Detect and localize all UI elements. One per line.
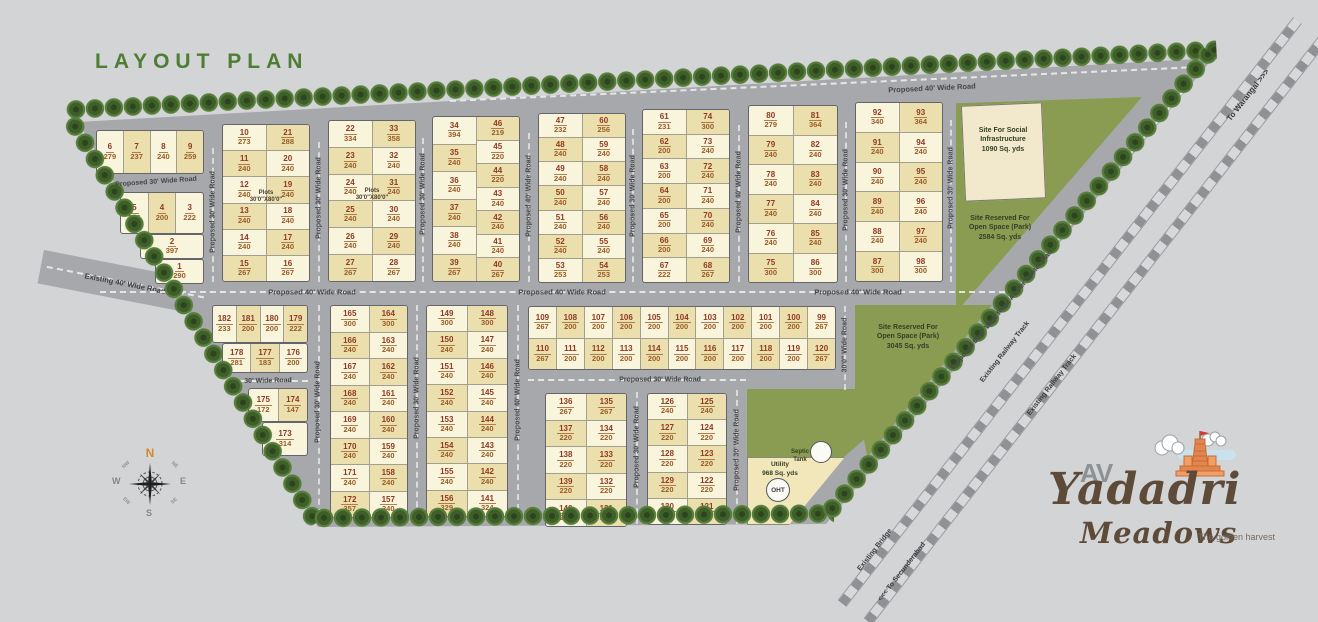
plot-cell: 105200 bbox=[640, 307, 668, 338]
plot-cell: 110267 bbox=[529, 339, 556, 370]
plot-cell: 56240 bbox=[583, 210, 626, 234]
plot-area: 233 bbox=[218, 325, 231, 333]
road-label-main-2: Proposed 40' Wide Road bbox=[518, 288, 606, 297]
plot-cell: 116200 bbox=[695, 339, 723, 370]
plot-area: 240 bbox=[440, 372, 453, 380]
plot-area: 240 bbox=[440, 399, 453, 407]
plot-area: 200 bbox=[564, 323, 577, 331]
road-label-v7: Proposed 30' Wide Road bbox=[843, 149, 850, 231]
plot-area: 267 bbox=[815, 355, 828, 363]
plot-cell: 7237 bbox=[123, 131, 150, 173]
plot-block-m: 1092671082001072001062001052001042001032… bbox=[528, 306, 836, 370]
plot-cell: 144240 bbox=[468, 411, 508, 437]
plot-cell: 67222 bbox=[643, 257, 686, 282]
plot-cell: 26240 bbox=[329, 227, 372, 254]
park-north-label: Site Reserved For Open Space (Park) 2584… bbox=[969, 214, 1031, 242]
plot-area: 267 bbox=[281, 269, 294, 277]
plot-cell: 22334 bbox=[329, 121, 372, 147]
plot-area: 240 bbox=[764, 239, 777, 247]
plot-area: 394 bbox=[448, 131, 461, 139]
plot-area: 200 bbox=[676, 355, 689, 363]
plot-cell: 86300 bbox=[794, 253, 838, 283]
plot-area: 240 bbox=[382, 479, 395, 487]
plot-area: 259 bbox=[184, 153, 197, 161]
plot-area: 200 bbox=[676, 323, 689, 331]
compass-icon bbox=[128, 462, 172, 506]
plot-cell: 90240 bbox=[856, 162, 899, 192]
plot-area: 300 bbox=[764, 269, 777, 277]
plot-area: 240 bbox=[597, 223, 610, 231]
plot-area: 222 bbox=[289, 325, 302, 333]
plot-area: 237 bbox=[130, 153, 143, 161]
plot-area: 256 bbox=[597, 126, 610, 134]
plot-cell: 49240 bbox=[539, 161, 582, 185]
plot-area: 240 bbox=[238, 191, 251, 199]
plot-area: 219 bbox=[491, 129, 504, 137]
plot-cell: 11240 bbox=[223, 150, 266, 176]
plot-block-r: 1493001502401512401522401532401542401552… bbox=[426, 305, 508, 517]
social-label-line2: Infrastructure bbox=[980, 136, 1026, 143]
plot-block-h: 9234091240902408924088240873009336494240… bbox=[855, 102, 943, 282]
plot-area: 358 bbox=[387, 135, 400, 143]
plot-cell: 142240 bbox=[468, 463, 508, 489]
plot-area: 220 bbox=[661, 486, 674, 494]
plot-cell: 35240 bbox=[433, 144, 476, 172]
plot-cell: 169240 bbox=[331, 411, 369, 438]
plot-area: 240 bbox=[440, 346, 453, 354]
plot-area: 279 bbox=[764, 121, 777, 129]
plot-cell: 177183 bbox=[250, 344, 278, 372]
plot-area: 200 bbox=[732, 323, 745, 331]
plot-area: 220 bbox=[661, 434, 674, 442]
plot-area: 200 bbox=[704, 323, 717, 331]
plot-area: 267 bbox=[448, 269, 461, 277]
plot-area: 240 bbox=[481, 372, 494, 380]
plot-cell: 108200 bbox=[556, 307, 584, 338]
plot-area: 200 bbox=[759, 355, 772, 363]
plot-area: 397 bbox=[166, 247, 179, 255]
plot-cell: 38240 bbox=[433, 226, 476, 254]
road-label-main-3: Proposed 40' Wide Road bbox=[814, 288, 902, 297]
plot-cell: 98300 bbox=[900, 251, 943, 281]
plot-cell: 63200 bbox=[643, 158, 686, 183]
plot-area: 240 bbox=[440, 451, 453, 459]
plot-area: 240 bbox=[554, 150, 567, 158]
plot-area: 240 bbox=[344, 188, 357, 196]
plot-area: 267 bbox=[536, 355, 549, 363]
plot-cell: 96240 bbox=[900, 191, 943, 221]
plot-area: 364 bbox=[809, 121, 822, 129]
plot-area: 240 bbox=[701, 197, 714, 205]
plot-area: 200 bbox=[266, 325, 279, 333]
plot-cell: 137220 bbox=[546, 420, 586, 447]
plot-area: 240 bbox=[914, 237, 927, 245]
plot-area: 220 bbox=[491, 153, 504, 161]
plot-area: 300 bbox=[481, 319, 494, 327]
plot-area: 240 bbox=[597, 175, 610, 183]
plot-cell: 109267 bbox=[529, 307, 556, 338]
plot-area: 200 bbox=[658, 197, 671, 205]
plot-cell: 25240 bbox=[329, 200, 372, 227]
plot-cell: 112200 bbox=[584, 339, 612, 370]
plot-area: 240 bbox=[281, 243, 294, 251]
plot-cell: 106200 bbox=[612, 307, 640, 338]
plot-area: 240 bbox=[344, 162, 357, 170]
plot-area: 267 bbox=[536, 323, 549, 331]
plot-cell: 54253 bbox=[583, 258, 626, 282]
plot-cell: 66200 bbox=[643, 233, 686, 258]
plot-cell: 158240 bbox=[370, 464, 408, 491]
plot-area: 200 bbox=[242, 325, 255, 333]
road-label-main-1: Proposed 40' Wide Road bbox=[268, 288, 356, 297]
plot-area: 220 bbox=[661, 460, 674, 468]
plot-cell: 148300 bbox=[468, 306, 508, 331]
layout-plan-canvas: LAYOUT PLAN Existing 40' Wide Road Site … bbox=[0, 0, 1318, 622]
plot-area: 200 bbox=[156, 214, 169, 222]
plot-cell: 8240 bbox=[150, 131, 177, 173]
plot-area: 267 bbox=[600, 408, 613, 416]
plot-cell: 64200 bbox=[643, 183, 686, 208]
plot-cell: 168240 bbox=[331, 385, 369, 412]
plot-area: 200 bbox=[787, 323, 800, 331]
plot-cell: 10273 bbox=[223, 125, 266, 150]
plot-note-line1: Plots bbox=[365, 188, 380, 194]
plot-cell: 81364 bbox=[794, 106, 838, 135]
plot-area: 240 bbox=[382, 452, 395, 460]
plot-area: 220 bbox=[600, 487, 613, 495]
plot-area: 183 bbox=[259, 359, 272, 367]
plot-cell: 89240 bbox=[856, 191, 899, 221]
plot-area: 200 bbox=[592, 355, 605, 363]
plot-area: 240 bbox=[661, 407, 674, 415]
plot-area: 240 bbox=[344, 242, 357, 250]
plot-cell: 176200 bbox=[279, 344, 307, 372]
plot-area: 300 bbox=[871, 267, 884, 275]
plot-cell: 51240 bbox=[539, 210, 582, 234]
plot-area: 240 bbox=[871, 237, 884, 245]
plot-cell: 13240 bbox=[223, 203, 266, 229]
plot-note-line1: Plots bbox=[259, 190, 274, 196]
plot-area: 240 bbox=[597, 199, 610, 207]
plot-area: 273 bbox=[238, 138, 251, 146]
plot-cell: 119200 bbox=[779, 339, 807, 370]
plot-area: 240 bbox=[382, 399, 395, 407]
plot-cell: 36240 bbox=[433, 171, 476, 199]
compass-west-label: W bbox=[112, 476, 121, 486]
plot-area: 200 bbox=[658, 147, 671, 155]
plot-cell: 151240 bbox=[427, 358, 467, 384]
plot-cell: 3222 bbox=[175, 193, 203, 233]
plot-area: 240 bbox=[387, 188, 400, 196]
plot-cell: 122220 bbox=[688, 472, 727, 498]
plot-area: 232 bbox=[554, 126, 567, 134]
plot-area: 220 bbox=[700, 486, 713, 494]
page-title: LAYOUT PLAN bbox=[95, 50, 308, 74]
road-label-w3: Proposed 40' Wide Road bbox=[515, 359, 522, 441]
plot-cell: 129220 bbox=[648, 472, 687, 498]
plot-cell: 150240 bbox=[427, 331, 467, 357]
park-middle-label: Site Reserved For Open Space (Park) 3045… bbox=[877, 323, 939, 351]
plot-area: 240 bbox=[448, 159, 461, 167]
septic-tank-label: Septic Tank bbox=[791, 448, 809, 464]
plot-cell: 44220 bbox=[477, 163, 520, 187]
plot-cell: 104200 bbox=[668, 307, 696, 338]
plot-area: 240 bbox=[343, 452, 356, 460]
plot-cell: 14240 bbox=[223, 229, 266, 255]
plot-cell: 161240 bbox=[370, 385, 408, 412]
plot-area: 200 bbox=[620, 323, 633, 331]
plot-cell: 155240 bbox=[427, 463, 467, 489]
plot-area: 240 bbox=[554, 223, 567, 231]
plot-cell: 78240 bbox=[749, 164, 793, 194]
plot-cell: 33358 bbox=[373, 121, 416, 147]
plot-cell: 43240 bbox=[477, 187, 520, 211]
plot-cell: 118200 bbox=[751, 339, 779, 370]
plot-cell: 164300 bbox=[370, 306, 408, 332]
plot-cell: 97240 bbox=[900, 221, 943, 251]
plot-note-line2: 30'0"X80'0" bbox=[356, 195, 389, 201]
plot-area: 240 bbox=[382, 346, 395, 354]
plot-cell: 39267 bbox=[433, 254, 476, 282]
plot-cell: 16267 bbox=[267, 255, 310, 281]
plot-cell: 181200 bbox=[236, 306, 260, 342]
plot-cell: 149300 bbox=[427, 306, 467, 331]
road-label-v4: Proposed 40' Wide Road bbox=[526, 155, 533, 237]
road-label-w5: Proposed 30' Wide Road bbox=[734, 409, 741, 491]
plot-cell: 87300 bbox=[856, 251, 899, 281]
plot-cell: 41240 bbox=[477, 234, 520, 258]
plot-cell: 83240 bbox=[794, 164, 838, 194]
road-label-lower30: Proposed 30' Wide Road bbox=[619, 377, 701, 384]
plot-area: 267 bbox=[559, 408, 572, 416]
plot-cell: 17240 bbox=[267, 229, 310, 255]
utility-label-line1: Utility bbox=[771, 461, 789, 468]
plot-area: 240 bbox=[701, 221, 714, 229]
plot-cell: 134220 bbox=[587, 420, 627, 447]
plot-cell: 34394 bbox=[433, 117, 476, 144]
plot-area: 240 bbox=[343, 479, 356, 487]
plot-area: 240 bbox=[343, 426, 356, 434]
plot-area: 200 bbox=[620, 355, 633, 363]
plot-cell: 170240 bbox=[331, 438, 369, 465]
plot-cell: 53253 bbox=[539, 258, 582, 282]
plot-cell: 117200 bbox=[723, 339, 751, 370]
road-label-v8: Proposed 30' Wide Road bbox=[948, 147, 955, 229]
plot-block-l-row2: 178281177183176200 bbox=[222, 343, 308, 373]
plot-area: 240 bbox=[700, 407, 713, 415]
plot-area: 231 bbox=[658, 123, 671, 131]
plot-cell: 4200 bbox=[148, 193, 176, 233]
plot-area: 240 bbox=[554, 247, 567, 255]
plot-area: 240 bbox=[764, 210, 777, 218]
plot-area: 240 bbox=[238, 217, 251, 225]
plot-size-note-2: Plots 30'0"X80'0" bbox=[356, 188, 389, 202]
plot-area: 200 bbox=[564, 355, 577, 363]
plot-cell: 182233 bbox=[213, 306, 236, 342]
plot-cell: 74300 bbox=[687, 110, 730, 134]
plot-area: 240 bbox=[382, 426, 395, 434]
plot-area: 220 bbox=[600, 434, 613, 442]
plot-area: 240 bbox=[597, 247, 610, 255]
plot-cell: 174147 bbox=[278, 389, 308, 421]
plot-cell: 46219 bbox=[477, 117, 520, 140]
plot-cell: 48240 bbox=[539, 137, 582, 161]
plot-cell: 143240 bbox=[468, 437, 508, 463]
plot-cell: 102200 bbox=[723, 307, 751, 338]
plot-area: 240 bbox=[238, 243, 251, 251]
plot-cell: 79240 bbox=[749, 135, 793, 165]
plot-cell: 23240 bbox=[329, 147, 372, 174]
plot-cell: 80279 bbox=[749, 106, 793, 135]
plot-area: 200 bbox=[287, 359, 300, 367]
plot-area: 240 bbox=[448, 186, 461, 194]
plot-cell: 71240 bbox=[687, 183, 730, 208]
plot-cell: 135267 bbox=[587, 394, 627, 420]
logo-name: Yadadri bbox=[1048, 464, 1241, 515]
plot-cell: 37240 bbox=[433, 199, 476, 227]
plot-area: 222 bbox=[658, 271, 671, 279]
plot-area: 240 bbox=[238, 165, 251, 173]
plot-area: 240 bbox=[914, 148, 927, 156]
park2-label-line1: Site Reserved For bbox=[878, 324, 938, 331]
plot-area: 300 bbox=[382, 320, 395, 328]
plot-cell: 61231 bbox=[643, 110, 686, 134]
plot-cell: 50240 bbox=[539, 185, 582, 209]
plot-cell: 145240 bbox=[468, 384, 508, 410]
plot-cell: 136267 bbox=[546, 394, 586, 420]
road-label-v6: Proposed 40' Wide Road bbox=[736, 151, 743, 233]
plot-area: 267 bbox=[344, 269, 357, 277]
compass-south-label: S bbox=[146, 508, 152, 518]
plot-area: 240 bbox=[809, 180, 822, 188]
plot-area: 200 bbox=[658, 172, 671, 180]
plot-area: 200 bbox=[704, 355, 717, 363]
plot-cell: 133220 bbox=[587, 446, 627, 473]
social-label-line1: Site For Social bbox=[979, 127, 1028, 134]
plot-area: 220 bbox=[559, 487, 572, 495]
septic-label-line1: Septic bbox=[791, 449, 809, 455]
plot-cell: 92340 bbox=[856, 103, 899, 132]
plot-area: 240 bbox=[809, 239, 822, 247]
road-label-w1: Proposed 30' Wide Road bbox=[315, 361, 322, 443]
plot-area: 300 bbox=[343, 320, 356, 328]
plot-size-note-1: Plots 30'0"X80'0" bbox=[250, 190, 283, 204]
plot-area: 240 bbox=[491, 200, 504, 208]
plot-area: 240 bbox=[914, 208, 927, 216]
plot-block-f: 6123162200632006420065200662006722274300… bbox=[642, 109, 730, 283]
plot-cell: 88240 bbox=[856, 221, 899, 251]
plot-cell: 65200 bbox=[643, 208, 686, 233]
plot-area: 240 bbox=[387, 162, 400, 170]
plot-area: 240 bbox=[448, 241, 461, 249]
plot-cell: 32240 bbox=[373, 147, 416, 174]
plot-area: 200 bbox=[658, 246, 671, 254]
plot-cell: 91240 bbox=[856, 132, 899, 162]
plot-cell: 171240 bbox=[331, 464, 369, 491]
plot-cell: 125240 bbox=[688, 394, 727, 419]
plot-area: 240 bbox=[597, 150, 610, 158]
plot-area: 240 bbox=[281, 165, 294, 173]
plot-area: 364 bbox=[914, 118, 927, 126]
septic-label-line2: Tank bbox=[793, 457, 807, 463]
plot-area: 240 bbox=[382, 373, 395, 381]
plot-cell: 18240 bbox=[267, 203, 310, 229]
plot-cell: 70240 bbox=[687, 208, 730, 233]
plot-cell: 166240 bbox=[331, 332, 369, 359]
plot-cell: 147240 bbox=[468, 331, 508, 357]
plot-area: 240 bbox=[871, 208, 884, 216]
plot-area: 147 bbox=[286, 406, 299, 414]
plot-cell: 52240 bbox=[539, 234, 582, 258]
plot-area: 240 bbox=[440, 425, 453, 433]
park2-label-area: 3045 Sq. yds bbox=[887, 343, 929, 350]
social-infrastructure-label: Site For Social Infrastructure 1090 Sq. … bbox=[979, 126, 1028, 154]
plot-cell: 72240 bbox=[687, 158, 730, 183]
road-label-w4: Proposed 30' Wide Road bbox=[634, 406, 641, 488]
plot-area: 240 bbox=[871, 148, 884, 156]
plot-area: 288 bbox=[281, 138, 294, 146]
plot-area: 200 bbox=[787, 355, 800, 363]
plot-cell: 93364 bbox=[900, 103, 943, 132]
plot-cell: 69240 bbox=[687, 233, 730, 258]
plot-cell: 27267 bbox=[329, 254, 372, 281]
plot-area: 240 bbox=[809, 210, 822, 218]
park1-label-line1: Site Reserved For bbox=[970, 215, 1030, 222]
plot-cell: 68267 bbox=[687, 257, 730, 282]
plot-cell: 153240 bbox=[427, 411, 467, 437]
plot-cell: 99267 bbox=[807, 307, 835, 338]
plot-area: 253 bbox=[554, 271, 567, 279]
plot-cell: 73240 bbox=[687, 134, 730, 159]
plot-cell: 20240 bbox=[267, 150, 310, 176]
plot-area: 200 bbox=[732, 355, 745, 363]
plot-area: 200 bbox=[759, 323, 772, 331]
plot-area: 222 bbox=[183, 214, 196, 222]
plot-cell: 132220 bbox=[587, 473, 627, 500]
plot-cell: 154240 bbox=[427, 437, 467, 463]
plot-cell: 9259 bbox=[176, 131, 203, 173]
plot-cell: 126240 bbox=[648, 394, 687, 419]
plot-cell: 21288 bbox=[267, 125, 310, 150]
plot-cell: 57240 bbox=[583, 185, 626, 209]
plot-block-q: 1653001662401672401682401692401702401712… bbox=[330, 305, 408, 518]
plot-area: 300 bbox=[809, 269, 822, 277]
plot-area: 240 bbox=[448, 214, 461, 222]
road-label-w6: 30'0" Wide Road bbox=[842, 318, 849, 373]
plot-block-d: 3439435240362403724038240392674621945220… bbox=[432, 116, 520, 282]
oht-label: OHT bbox=[771, 487, 785, 494]
plot-area: 200 bbox=[648, 323, 661, 331]
plot-area: 240 bbox=[701, 246, 714, 254]
plot-area: 240 bbox=[491, 247, 504, 255]
plot-cell: 62200 bbox=[643, 134, 686, 159]
plot-area: 240 bbox=[481, 478, 494, 486]
plot-block-l-row1: 182233181200180200179222 bbox=[212, 305, 308, 343]
plot-cell: 159240 bbox=[370, 438, 408, 465]
plot-area: 240 bbox=[343, 373, 356, 381]
plot-area: 267 bbox=[491, 271, 504, 279]
plot-area: 340 bbox=[871, 118, 884, 126]
plot-cell: 29240 bbox=[373, 227, 416, 254]
plot-area: 240 bbox=[914, 178, 927, 186]
plot-cell: 58240 bbox=[583, 161, 626, 185]
road-label-v1: Proposed 30' Wide Road bbox=[210, 171, 217, 253]
plot-cell: 59240 bbox=[583, 137, 626, 161]
road-label-v2: Proposed 30' Wide Road bbox=[316, 157, 323, 239]
plot-area: 300 bbox=[440, 319, 453, 327]
compass-north-label: N bbox=[146, 446, 155, 460]
plot-area: 334 bbox=[344, 135, 357, 143]
